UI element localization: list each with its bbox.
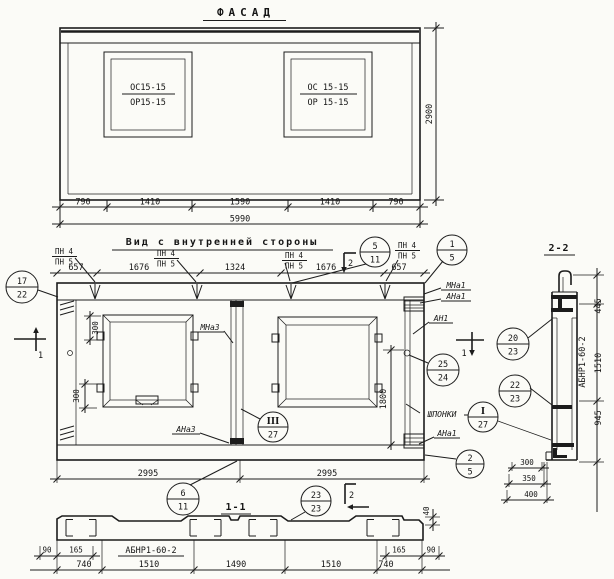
svg-text:300: 300 [72,389,81,403]
svg-text:22: 22 [17,291,27,301]
svg-text:ШПОНКИ: ШПОНКИ [427,410,457,419]
inner-window-1 [97,315,198,407]
section-mark-2-bottom: 2 [345,484,369,510]
svg-text:ПН 4: ПН 4 [157,249,176,258]
label-an1: АН1 [413,314,453,334]
svg-text:11: 11 [370,256,380,266]
dim-40: 40 [422,506,440,531]
callout-23-23: 23 23 [291,486,331,520]
svg-text:ПН 4: ПН 4 [398,241,417,250]
svg-text:165: 165 [69,546,83,555]
svg-text:11: 11 [178,503,188,513]
dim-300-upper: 300 [84,311,101,345]
svg-text:6: 6 [180,489,185,499]
pn-label-4: ПН 4 ПН 5 [386,241,420,281]
center-rib [230,300,244,445]
svg-text:АНа3: АНа3 [175,425,195,434]
svg-text:740: 740 [76,560,91,570]
section-mark-1-left: 1 [14,327,46,361]
dim-1676-left: 1676 [129,263,149,273]
svg-text:2995: 2995 [138,469,158,479]
svg-text:ПН 5: ПН 5 [157,260,175,269]
svg-text:23: 23 [311,505,321,515]
svg-text:27: 27 [478,421,488,431]
label-mna3: МНа3 [197,323,233,343]
svg-text:ПН 5: ПН 5 [398,252,416,261]
dim-1800: 1800 [379,345,404,450]
svg-text:90: 90 [42,546,52,555]
svg-text:2: 2 [467,454,472,464]
svg-text:300: 300 [520,458,534,467]
facade-window-2: ОС 15-15 ОР 15-15 [284,52,372,137]
callout-25-24: 25 24 [409,354,459,386]
svg-text:МНа3: МНа3 [199,323,219,332]
technical-drawing: ФАСАД ОС15-15 ОР15-15 ОС 15-15 ОР 15-15 … [0,0,614,579]
callout-I-27: I 27 [464,402,551,440]
dim-1410-left: 1410 [140,198,160,208]
callout-22-23: 22 23 [499,375,552,407]
dim-1676-right: 1676 [316,263,336,273]
svg-text:1510: 1510 [139,560,159,570]
svg-text:5: 5 [467,468,472,478]
section-mark-1-right: 1 [456,332,484,359]
svg-text:ПН 4: ПН 4 [285,251,304,260]
svg-text:1510: 1510 [321,560,341,570]
dim-790-left: 790 [75,198,90,208]
svg-text:III: III [267,417,280,427]
section-1-1-view: 40 90 165 АБНР1-60-2 165 90 740 1510 149… [30,506,450,574]
section22-bottom-dims: 300 350 400 [501,458,554,504]
dim-5990-total: 5990 [230,215,250,225]
label-ana1-bottom: АНа1 [419,429,460,444]
inner-view-annotations: 300 300 МНа3 АНа3 III 27 1800 АН1 [14,311,551,520]
svg-text:24: 24 [438,374,448,384]
window2-mark-top: ОС 15-15 [308,83,349,93]
svg-text:23: 23 [510,395,520,405]
section-2-2-view: 2-2 445 1510 945 АБНР1-60-2 [497,243,604,512]
svg-text:25: 25 [438,360,448,370]
section11-mark: АБНР1-60-2 [118,546,184,556]
svg-text:МНа1: МНа1 [445,281,465,290]
svg-text:1-1: 1-1 [225,502,246,513]
svg-text:ПН 5: ПН 5 [55,258,73,267]
svg-text:АБНР1-60-2: АБНР1-60-2 [125,546,176,556]
callout-1-5: 1 5 [425,235,467,283]
svg-text:945: 945 [594,410,604,425]
section-1-1-title: 1-1 [221,502,251,514]
left-rib [60,300,76,445]
channel-anchors [66,520,399,537]
section-2-2-title: 2-2 [544,243,575,255]
window1-mark-top: ОС15-15 [130,83,166,93]
dim-1590: 1590 [230,198,250,208]
svg-text:400: 400 [524,490,538,499]
label-ana3: АНа3 [172,425,229,443]
dim-790-right: 790 [388,198,403,208]
svg-text:1490: 1490 [226,560,246,570]
svg-text:350: 350 [522,474,536,483]
svg-text:2995: 2995 [317,469,337,479]
svg-text:740: 740 [378,560,393,570]
svg-text:22: 22 [510,381,520,391]
svg-text:27: 27 [268,431,278,441]
dim-1410-right: 1410 [320,198,340,208]
svg-text:2-2: 2-2 [548,243,569,254]
pn-label-3: ПН 4 ПН 5 [282,251,307,281]
facade-window-1: ОС15-15 ОР15-15 [104,52,192,137]
svg-text:20: 20 [508,334,518,344]
section22-body [546,271,577,460]
callout-17-22: 17 22 [6,271,58,303]
svg-text:165: 165 [392,546,406,555]
section22-mark: АБНР1-60-2 [578,336,588,387]
svg-text:23: 23 [508,348,518,358]
drawing-sheet: ФАСАД ОС15-15 ОР15-15 ОС 15-15 ОР 15-15 … [0,0,614,579]
svg-text:2: 2 [349,491,354,501]
svg-text:1510: 1510 [594,353,604,373]
svg-text:23: 23 [311,491,321,501]
facade-height-dim: 2900 [425,104,435,124]
svg-text:300: 300 [91,321,100,335]
svg-text:I: I [481,407,485,417]
label-shponki: ШПОНКИ [406,404,457,419]
svg-text:1: 1 [38,351,43,361]
svg-text:5: 5 [449,254,454,264]
svg-text:1: 1 [461,349,466,359]
svg-text:40: 40 [422,506,431,516]
svg-text:1800: 1800 [379,389,389,409]
svg-text:90: 90 [426,546,436,555]
svg-text:ПН 4: ПН 4 [55,247,74,256]
facade-view: ФАСАД ОС15-15 ОР15-15 ОС 15-15 ОР 15-15 [60,6,420,200]
svg-text:АН1: АН1 [433,314,448,323]
svg-text:17: 17 [17,277,27,287]
label-ana1: АНа1 [420,292,471,303]
inner-view-title: Вид с внутренней стороны [126,236,319,248]
callout-20-23: 20 23 [497,319,552,360]
svg-text:АНа1: АНа1 [445,292,465,301]
svg-text:ПН 5: ПН 5 [285,262,303,271]
svg-text:1: 1 [449,240,454,250]
section11-dims: 90 165 АБНР1-60-2 165 90 740 1510 1490 1… [30,540,450,574]
right-rib [404,297,424,448]
inner-view-panel [57,283,424,460]
svg-text:445: 445 [594,298,604,313]
inner-window-2 [272,317,382,407]
pn-label-2: ПН 4 ПН 5 [154,249,196,282]
window2-mark-bottom: ОР 15-15 [308,98,349,108]
svg-text:5: 5 [372,242,377,252]
window1-mark-bottom: ОР15-15 [130,98,166,108]
dim-1324: 1324 [225,263,245,273]
dim-2995-row: 2995 2995 [50,460,430,483]
callout-III-27: III 27 [241,409,288,442]
callout-2-5: 2 5 [425,450,484,478]
svg-text:АНа1: АНа1 [436,429,456,438]
inner-view-header: Вид с внутренней стороны 657 1676 1324 1… [6,235,471,303]
facade-title: ФАСАД [217,6,275,19]
